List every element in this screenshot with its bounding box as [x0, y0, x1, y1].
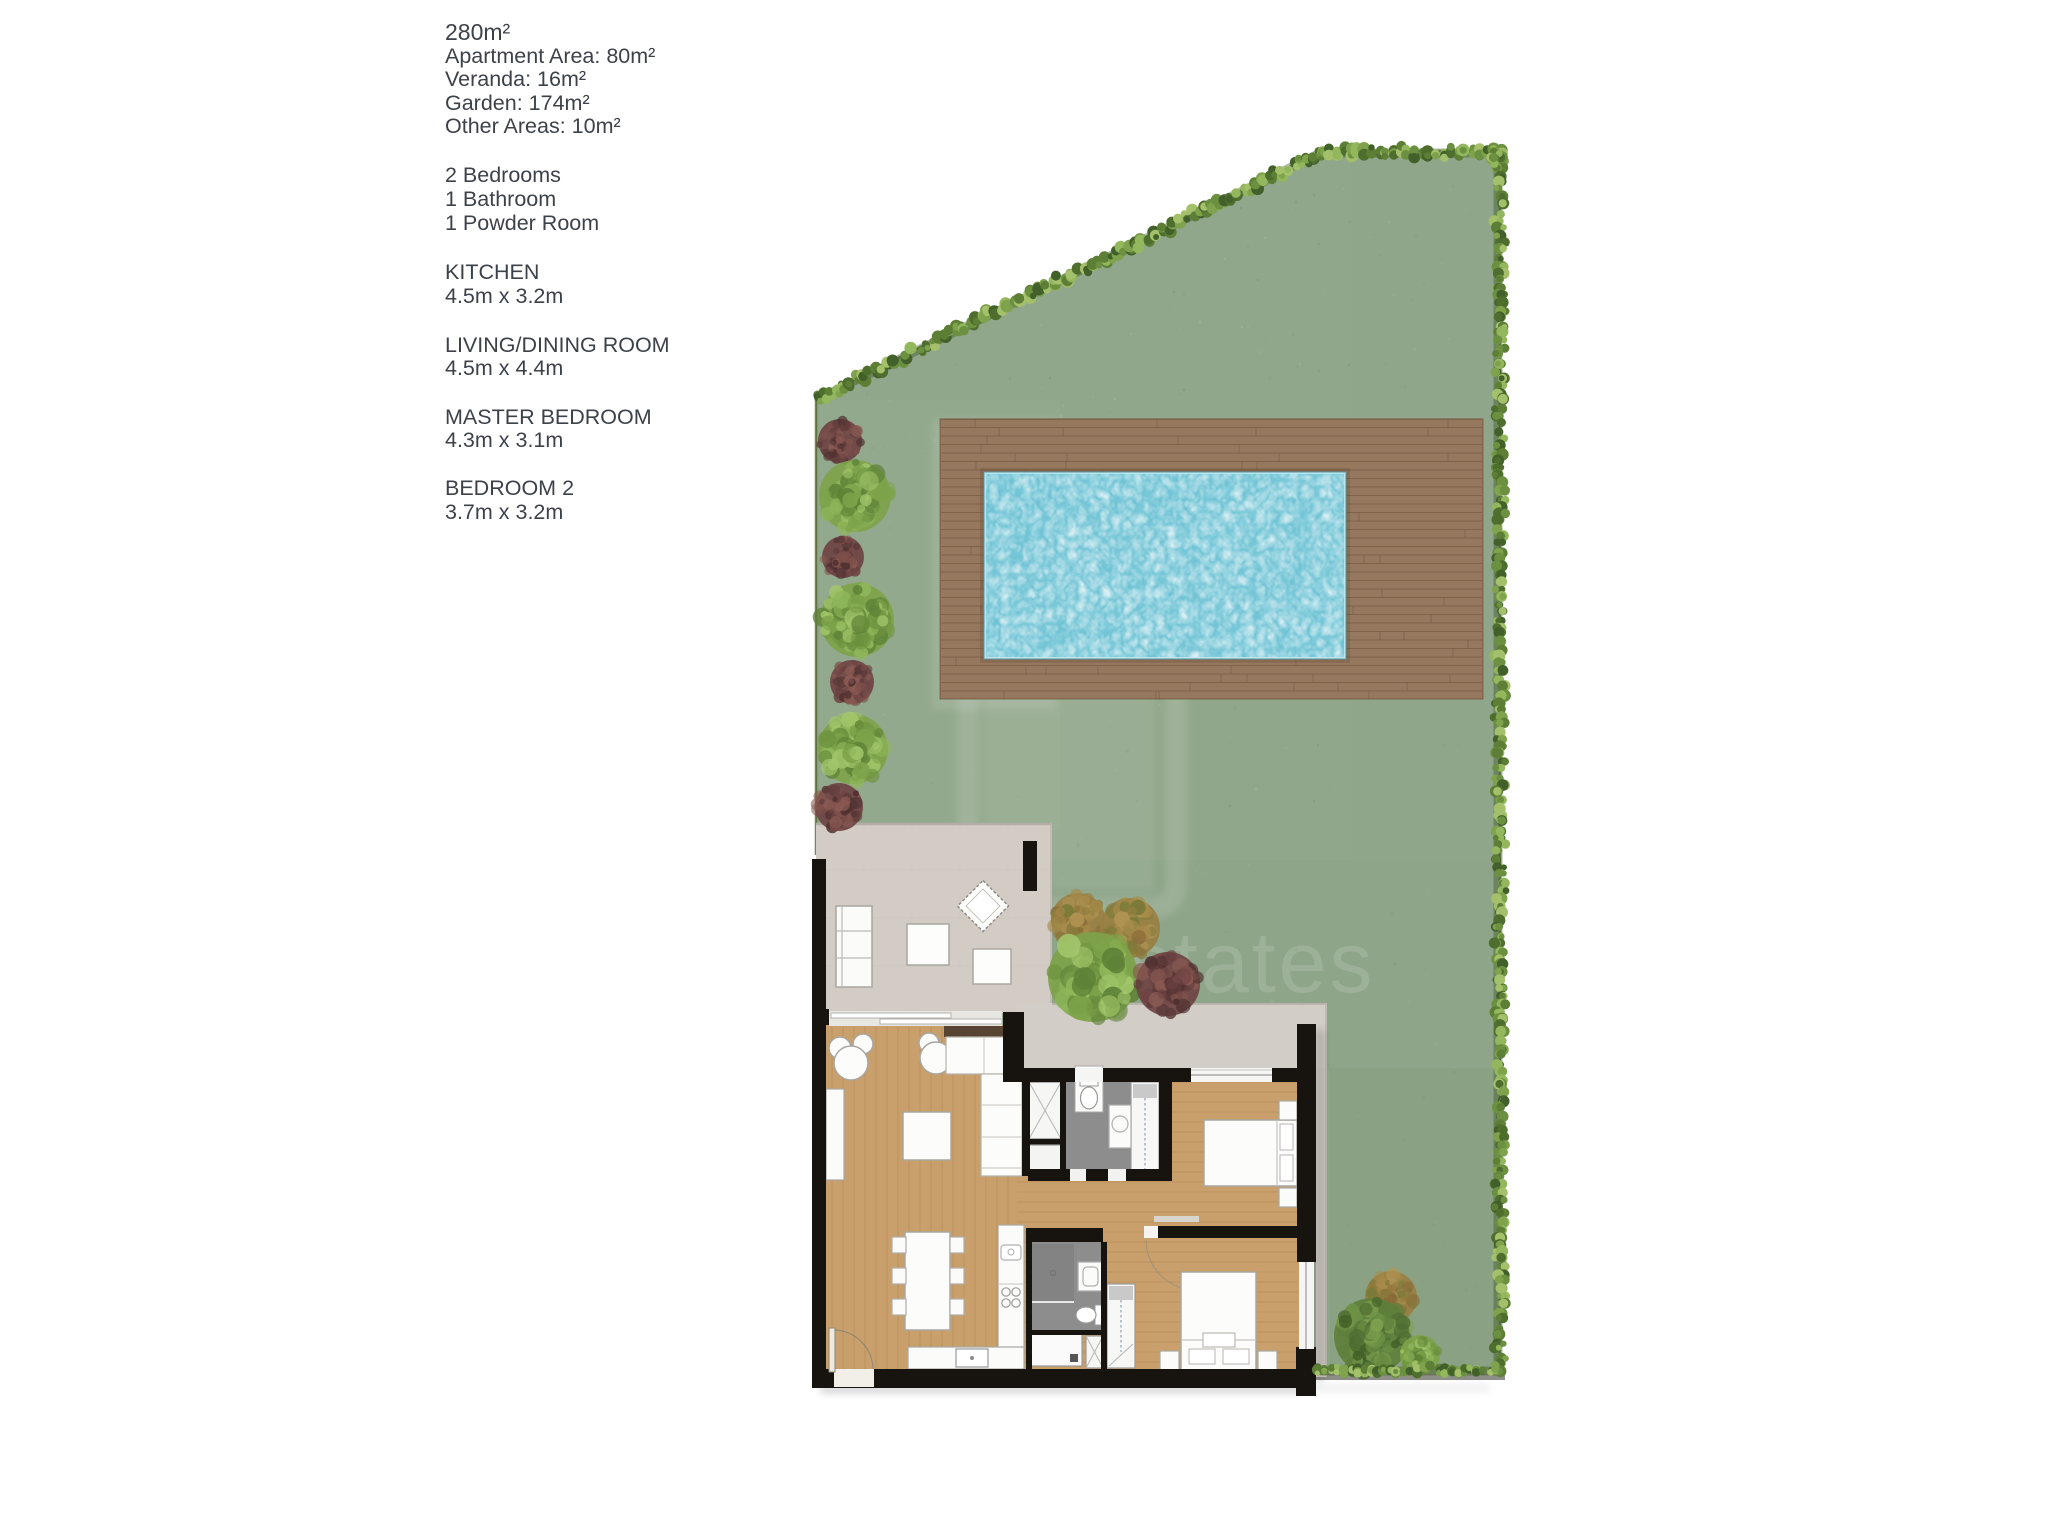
svg-text:LIVING/DINING ROOM: LIVING/DINING ROOM	[445, 333, 670, 357]
svg-text:Apartment Area: 80m²: Apartment Area: 80m²	[445, 44, 655, 68]
svg-text:MASTER BEDROOM: MASTER BEDROOM	[445, 405, 652, 429]
svg-text:280m²: 280m²	[445, 19, 511, 45]
svg-text:4.3m x 3.1m: 4.3m x 3.1m	[445, 428, 563, 452]
svg-text:4.5m x 4.4m: 4.5m x 4.4m	[445, 356, 563, 380]
svg-text:1 Bathroom: 1 Bathroom	[445, 187, 556, 211]
svg-text:BEDROOM 2: BEDROOM 2	[445, 476, 574, 500]
svg-text:Veranda: 16m²: Veranda: 16m²	[445, 67, 586, 91]
svg-text:4.5m x 3.2m: 4.5m x 3.2m	[445, 284, 563, 308]
svg-text:Garden: 174m²: Garden: 174m²	[445, 91, 590, 115]
svg-text:KITCHEN: KITCHEN	[445, 260, 539, 284]
svg-text:1 Powder Room: 1 Powder Room	[445, 211, 599, 235]
svg-text:2 Bedrooms: 2 Bedrooms	[445, 163, 561, 187]
svg-text:Other Areas: 10m²: Other Areas: 10m²	[445, 114, 621, 138]
svg-text:3.7m x 3.2m: 3.7m x 3.2m	[445, 500, 563, 524]
